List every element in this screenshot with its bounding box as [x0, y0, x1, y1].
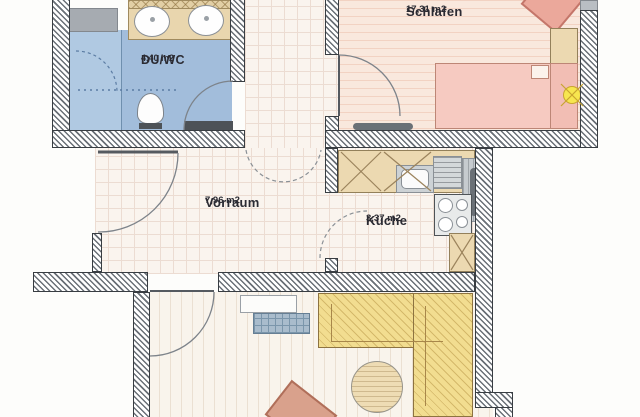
burner-3 — [438, 217, 453, 232]
wall-entry-stub — [92, 233, 102, 272]
wall-bedroom-right — [580, 10, 598, 148]
wall-kitchen-divider-top — [325, 148, 338, 193]
burner-1 — [438, 198, 453, 213]
toilet-cistern — [139, 123, 162, 129]
wall-bedroom-bottom — [325, 130, 598, 148]
wall-vorraum-bottom-right — [218, 272, 475, 292]
kitchen-lower-cabinet — [449, 233, 475, 272]
room-area: 3,37 m2 — [366, 214, 401, 224]
room-area: 7,96 m2 — [205, 196, 240, 206]
wall-kitchen-right — [475, 148, 493, 394]
wall-below-jog — [495, 407, 513, 417]
faucet-right — [204, 16, 209, 21]
kitchen-sink-bowl — [401, 169, 429, 189]
room-area: 4,40 m2 — [141, 54, 174, 64]
pillow — [531, 65, 549, 79]
round-table — [351, 361, 403, 413]
wall-bath-bottom — [52, 130, 245, 148]
sideboard — [253, 313, 310, 334]
wardrobe — [550, 28, 578, 65]
burner-2 — [456, 199, 468, 211]
floor-shower-zone — [70, 30, 122, 130]
room-area: 17,31 m2 — [406, 5, 446, 15]
floor-plan: Schlafen 17,31 m2 DU/WC 4,40 m2 Vorraum … — [0, 0, 640, 417]
wall-jog-bottom-right — [475, 392, 513, 408]
wall-living-left — [133, 292, 150, 417]
kitchen-drainer — [433, 156, 462, 189]
sofa-inner-line-2 — [425, 306, 461, 406]
burner-4 — [456, 216, 468, 228]
shower-tray — [65, 8, 118, 32]
wall-bath-left — [52, 0, 70, 148]
toilet — [137, 93, 164, 124]
faucet-left — [150, 17, 155, 22]
wall-kitchen-divider-bottom — [325, 258, 338, 272]
bath-door-leaf — [184, 121, 233, 130]
lowboard — [240, 295, 297, 313]
wall-bath-right — [230, 0, 245, 82]
wall-bedroom-left-top — [325, 0, 339, 55]
bedroom-radiator — [353, 123, 413, 130]
lamp-symbol — [563, 86, 581, 104]
wall-vorraum-bottom-left — [33, 272, 148, 292]
